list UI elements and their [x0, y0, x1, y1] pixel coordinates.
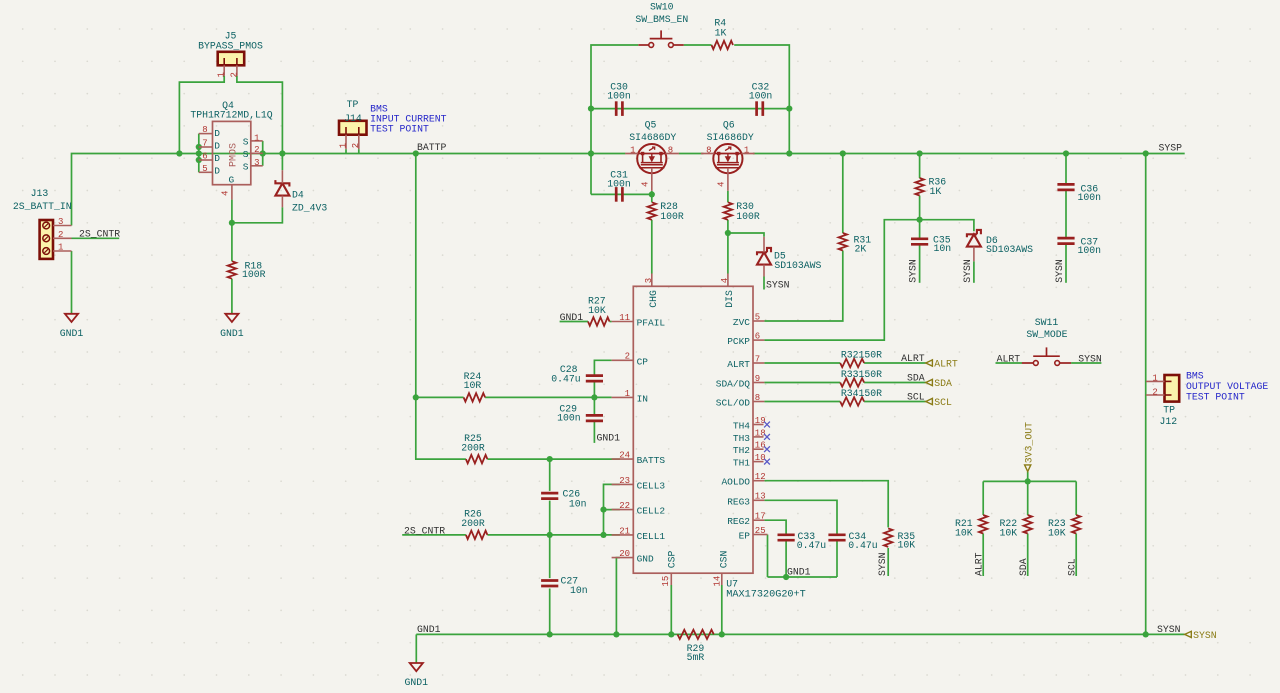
- svg-text:2: 2: [351, 143, 361, 148]
- svg-text:ALRT: ALRT: [901, 353, 925, 364]
- svg-text:Q6: Q6: [723, 120, 735, 131]
- svg-text:5: 5: [202, 164, 207, 174]
- svg-text:10K: 10K: [1000, 528, 1018, 539]
- svg-text:J13: J13: [31, 188, 49, 199]
- svg-text:20: 20: [619, 549, 630, 559]
- svg-text:SYSN: SYSN: [962, 259, 973, 283]
- svg-text:SDA: SDA: [907, 373, 925, 384]
- svg-text:GND1: GND1: [417, 624, 441, 635]
- svg-text:GND1: GND1: [220, 328, 244, 339]
- svg-text:SI4686DY: SI4686DY: [629, 132, 676, 143]
- svg-text:R33150R: R33150R: [841, 369, 882, 380]
- svg-text:19: 19: [755, 416, 766, 426]
- svg-text:3: 3: [254, 158, 259, 168]
- svg-text:1: 1: [338, 143, 348, 148]
- svg-text:10n: 10n: [569, 499, 587, 510]
- svg-text:PCKP: PCKP: [727, 336, 750, 347]
- svg-text:SYSP: SYSP: [1159, 142, 1183, 153]
- svg-text:TP: TP: [1163, 405, 1175, 416]
- svg-text:16: 16: [755, 441, 766, 451]
- svg-text:CELL2: CELL2: [637, 506, 666, 517]
- svg-text:11: 11: [619, 313, 630, 323]
- svg-text:D: D: [214, 153, 220, 164]
- svg-text:2: 2: [254, 145, 259, 155]
- svg-text:3: 3: [58, 217, 63, 227]
- svg-text:5: 5: [755, 312, 760, 322]
- svg-text:CSN: CSN: [718, 551, 729, 569]
- svg-text:G: G: [229, 174, 235, 185]
- svg-text:100R: 100R: [660, 211, 684, 222]
- svg-text:AOLDO: AOLDO: [721, 477, 750, 488]
- svg-text:SDA: SDA: [934, 378, 952, 389]
- svg-text:IN: IN: [637, 393, 648, 404]
- svg-text:GND1: GND1: [597, 433, 621, 444]
- svg-text:1K: 1K: [715, 27, 727, 38]
- svg-text:6: 6: [202, 152, 207, 162]
- svg-text:S: S: [243, 137, 249, 148]
- svg-text:SD103AWS: SD103AWS: [986, 244, 1033, 255]
- svg-text:3V3_OUT: 3V3_OUT: [1023, 422, 1034, 463]
- svg-text:BMS: BMS: [1186, 370, 1204, 381]
- svg-text:CHG: CHG: [648, 290, 659, 308]
- svg-text:TEST POINT: TEST POINT: [1186, 391, 1245, 402]
- svg-text:0.47u: 0.47u: [848, 540, 878, 551]
- svg-text:R32150R: R32150R: [841, 349, 882, 360]
- svg-text:13: 13: [755, 492, 766, 502]
- svg-text:15: 15: [661, 576, 671, 587]
- svg-text:SW_MODE: SW_MODE: [1026, 329, 1067, 340]
- svg-text:Q5: Q5: [645, 120, 657, 131]
- svg-text:100n: 100n: [607, 178, 631, 189]
- svg-text:SDA: SDA: [1018, 558, 1029, 576]
- svg-text:GND1: GND1: [60, 328, 84, 339]
- svg-text:1: 1: [254, 134, 259, 144]
- svg-text:ZD_4V3: ZD_4V3: [292, 203, 327, 214]
- svg-text:D: D: [214, 166, 220, 177]
- svg-text:SCL: SCL: [934, 397, 952, 408]
- svg-text:TH2: TH2: [733, 445, 750, 456]
- svg-text:21: 21: [619, 526, 630, 536]
- svg-text:100n: 100n: [1078, 192, 1102, 203]
- svg-text:10K: 10K: [955, 528, 973, 539]
- svg-text:10K: 10K: [898, 540, 916, 551]
- svg-text:ZVC: ZVC: [733, 317, 750, 328]
- svg-text:2: 2: [229, 72, 239, 77]
- svg-text:J14: J14: [344, 113, 362, 124]
- svg-text:3: 3: [644, 278, 654, 283]
- svg-text:200R: 200R: [461, 442, 485, 453]
- svg-text:0.47u: 0.47u: [551, 374, 581, 385]
- svg-text:S: S: [243, 161, 249, 172]
- svg-text:17: 17: [755, 512, 766, 522]
- svg-text:22: 22: [619, 501, 630, 511]
- svg-text:BATTS: BATTS: [637, 455, 666, 466]
- svg-text:1: 1: [58, 242, 63, 252]
- svg-text:0.47u: 0.47u: [797, 540, 827, 551]
- svg-text:GND1: GND1: [787, 567, 811, 578]
- svg-text:12: 12: [755, 472, 766, 482]
- svg-text:SYSN: SYSN: [908, 259, 919, 283]
- svg-text:1: 1: [625, 389, 630, 399]
- svg-text:D4: D4: [292, 190, 304, 201]
- svg-text:TH3: TH3: [733, 433, 750, 444]
- svg-text:MAX17320G20+T: MAX17320G20+T: [726, 589, 805, 600]
- svg-text:CSP: CSP: [667, 551, 678, 569]
- svg-text:4: 4: [641, 182, 651, 187]
- svg-text:8: 8: [706, 145, 711, 155]
- svg-text:CELL3: CELL3: [637, 480, 666, 491]
- svg-text:10n: 10n: [934, 243, 952, 254]
- svg-text:CP: CP: [637, 356, 649, 367]
- svg-text:PMOS: PMOS: [229, 143, 240, 167]
- svg-text:GND: GND: [637, 554, 654, 565]
- svg-text:100n: 100n: [557, 412, 581, 423]
- svg-text:GND1: GND1: [405, 677, 429, 688]
- svg-text:1: 1: [217, 72, 227, 77]
- svg-text:J12: J12: [1160, 416, 1178, 427]
- svg-text:SD103AWS: SD103AWS: [774, 260, 821, 271]
- svg-text:SYSN: SYSN: [1078, 354, 1102, 365]
- svg-text:10: 10: [755, 453, 766, 463]
- svg-text:SW11: SW11: [1035, 317, 1059, 328]
- svg-text:SYSN: SYSN: [766, 280, 790, 291]
- svg-text:TH4: TH4: [733, 421, 750, 432]
- svg-text:BATTP: BATTP: [417, 142, 447, 153]
- svg-text:100n: 100n: [607, 91, 631, 102]
- svg-text:ALRT: ALRT: [974, 552, 985, 576]
- svg-text:8: 8: [202, 125, 207, 135]
- svg-text:24: 24: [619, 451, 630, 461]
- svg-text:4: 4: [220, 191, 230, 196]
- svg-text:SDA/DQ: SDA/DQ: [716, 379, 751, 390]
- svg-text:2S_CNTR: 2S_CNTR: [79, 228, 120, 239]
- svg-text:2: 2: [625, 352, 630, 362]
- svg-text:PFAIL: PFAIL: [637, 318, 666, 329]
- svg-text:4: 4: [717, 182, 727, 187]
- svg-text:200R: 200R: [461, 518, 485, 529]
- svg-text:SYSN: SYSN: [877, 552, 888, 576]
- svg-text:18: 18: [755, 428, 766, 438]
- svg-text:TH1: TH1: [733, 458, 750, 469]
- svg-text:14: 14: [712, 576, 722, 587]
- svg-text:10K: 10K: [588, 305, 606, 316]
- svg-text:SYSN: SYSN: [1193, 630, 1217, 641]
- svg-text:GND1: GND1: [560, 312, 584, 323]
- svg-text:8: 8: [668, 145, 673, 155]
- svg-text:23: 23: [619, 476, 630, 486]
- svg-text:SCL: SCL: [907, 392, 925, 403]
- svg-text:10n: 10n: [570, 585, 588, 596]
- svg-text:25: 25: [755, 526, 766, 536]
- svg-text:SW_BMS_EN: SW_BMS_EN: [635, 14, 688, 25]
- svg-text:8: 8: [755, 393, 760, 403]
- svg-text:TP: TP: [347, 99, 359, 110]
- svg-text:1: 1: [744, 145, 749, 155]
- svg-text:SYSN: SYSN: [1054, 259, 1065, 283]
- svg-text:SCL: SCL: [1067, 558, 1078, 576]
- svg-text:EP: EP: [739, 531, 751, 542]
- svg-text:2: 2: [58, 230, 63, 240]
- svg-text:2S_BATT_IN: 2S_BATT_IN: [13, 201, 72, 212]
- svg-text:SYSN: SYSN: [1157, 624, 1181, 635]
- svg-text:2S_CNTR: 2S_CNTR: [404, 526, 445, 537]
- svg-text:100R: 100R: [736, 211, 760, 222]
- svg-text:ALRT: ALRT: [997, 354, 1021, 365]
- svg-text:S: S: [243, 149, 249, 160]
- svg-text:100R: 100R: [242, 269, 266, 280]
- svg-text:6: 6: [755, 332, 760, 342]
- svg-text:BYPASS_PMOS: BYPASS_PMOS: [198, 41, 263, 52]
- svg-text:ALRT: ALRT: [727, 359, 750, 370]
- svg-text:1: 1: [1152, 374, 1157, 384]
- svg-text:D: D: [214, 128, 220, 139]
- svg-text:SCL/OD: SCL/OD: [716, 398, 751, 409]
- svg-text:10R: 10R: [464, 380, 482, 391]
- svg-text:U7: U7: [726, 578, 738, 589]
- svg-text:10K: 10K: [1048, 528, 1066, 539]
- svg-text:4: 4: [720, 278, 730, 283]
- svg-text:CELL1: CELL1: [637, 531, 666, 542]
- svg-text:2: 2: [1152, 387, 1157, 397]
- svg-text:R34150R: R34150R: [841, 388, 882, 399]
- svg-text:REG2: REG2: [727, 516, 750, 527]
- svg-text:100n: 100n: [1078, 245, 1102, 256]
- svg-text:9: 9: [755, 374, 760, 384]
- svg-text:SW10: SW10: [650, 2, 674, 13]
- svg-text:REG3: REG3: [727, 496, 750, 507]
- svg-text:DIS: DIS: [724, 290, 735, 308]
- svg-text:100n: 100n: [749, 91, 773, 102]
- svg-text:D: D: [214, 141, 220, 152]
- svg-text:5mR: 5mR: [687, 652, 705, 663]
- svg-text:7: 7: [755, 354, 760, 364]
- svg-text:1: 1: [630, 145, 635, 155]
- svg-text:SI4686DY: SI4686DY: [707, 132, 754, 143]
- svg-text:TPH1R712MD,L1Q: TPH1R712MD,L1Q: [190, 109, 272, 120]
- svg-text:2K: 2K: [855, 244, 867, 255]
- svg-text:TEST POINT: TEST POINT: [370, 124, 429, 135]
- svg-text:7: 7: [202, 139, 207, 149]
- svg-text:1K: 1K: [930, 186, 942, 197]
- svg-text:ALRT: ALRT: [934, 359, 958, 370]
